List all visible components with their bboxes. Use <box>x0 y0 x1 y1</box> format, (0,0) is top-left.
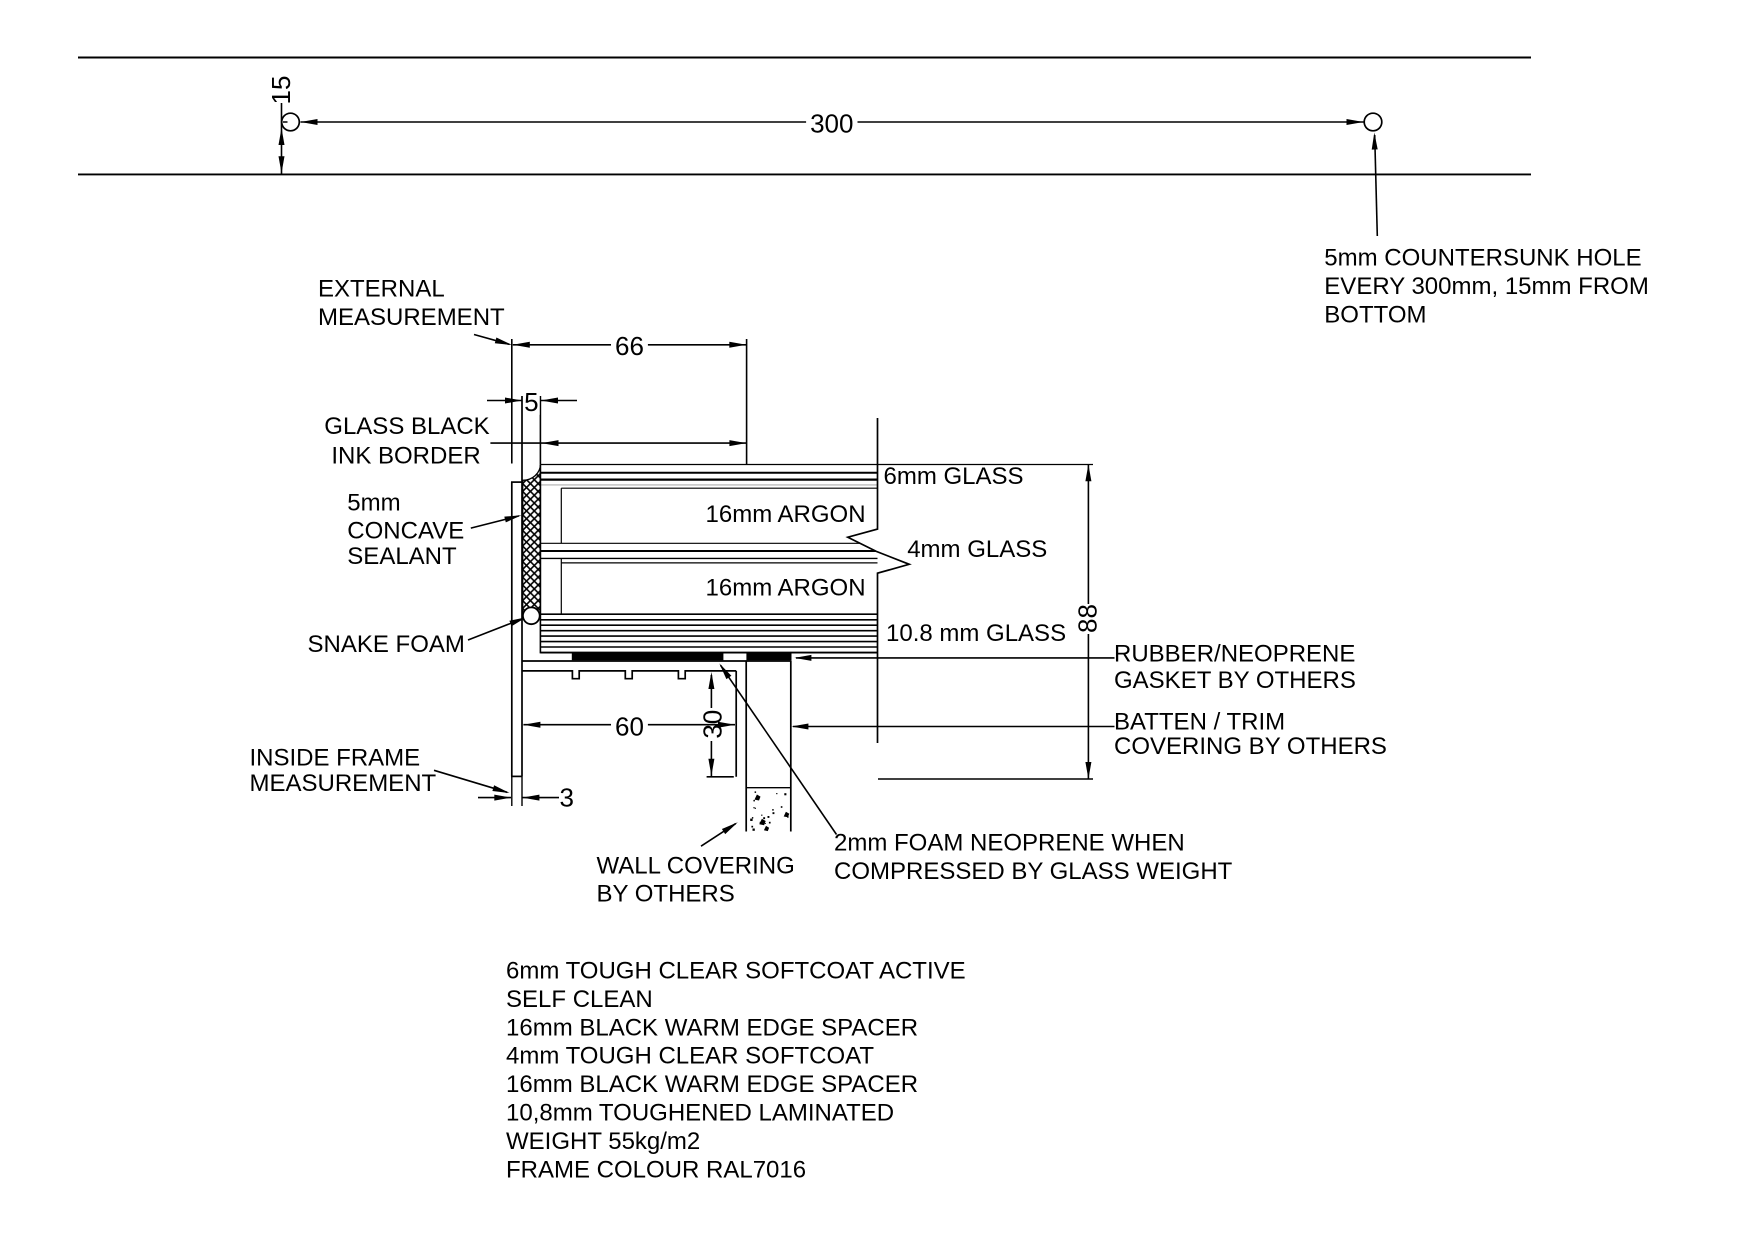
svg-text:5mm: 5mm <box>347 490 400 517</box>
svg-text:CONCAVE: CONCAVE <box>347 518 464 545</box>
svg-text:SELF CLEAN: SELF CLEAN <box>506 986 653 1013</box>
svg-text:15: 15 <box>266 76 296 105</box>
svg-text:5mm COUNTERSUNK HOLE: 5mm COUNTERSUNK HOLE <box>1324 245 1641 272</box>
svg-text:GLASS BLACK: GLASS BLACK <box>324 413 489 440</box>
svg-text:6mm GLASS: 6mm GLASS <box>884 463 1024 490</box>
svg-text:COMPRESSED BY GLASS WEIGHT: COMPRESSED BY GLASS WEIGHT <box>834 858 1233 885</box>
svg-text:BATTEN / TRIM: BATTEN / TRIM <box>1114 709 1285 736</box>
svg-text:GASKET BY OTHERS: GASKET BY OTHERS <box>1114 667 1356 694</box>
svg-text:WALL COVERING: WALL COVERING <box>597 853 795 880</box>
svg-text:INSIDE FRAME: INSIDE FRAME <box>250 745 421 772</box>
svg-text:BOTTOM: BOTTOM <box>1324 302 1426 329</box>
svg-text:4mm GLASS: 4mm GLASS <box>907 536 1047 563</box>
svg-text:6mm TOUGH CLEAR SOFTCOAT ACTIV: 6mm TOUGH CLEAR SOFTCOAT ACTIVE <box>506 958 966 985</box>
svg-text:16mm BLACK WARM EDGE SPACER: 16mm BLACK WARM EDGE SPACER <box>506 1014 918 1041</box>
svg-text:60: 60 <box>615 711 644 741</box>
svg-text:300: 300 <box>810 108 853 138</box>
svg-text:10.8 mm GLASS: 10.8 mm GLASS <box>886 620 1066 647</box>
svg-text:2mm FOAM NEOPRENE WHEN: 2mm FOAM NEOPRENE WHEN <box>834 830 1185 857</box>
svg-text:3: 3 <box>560 783 574 813</box>
svg-text:88: 88 <box>1072 604 1102 633</box>
svg-text:MEASUREMENT: MEASUREMENT <box>250 770 437 797</box>
svg-text:EVERY 300mm, 15mm FROM: EVERY 300mm, 15mm FROM <box>1324 273 1649 300</box>
svg-text:16mm BLACK WARM EDGE SPACER: 16mm BLACK WARM EDGE SPACER <box>506 1071 918 1098</box>
svg-text:SEALANT: SEALANT <box>347 543 457 570</box>
svg-text:10,8mm TOUGHENED LAMINATED: 10,8mm TOUGHENED LAMINATED <box>506 1100 894 1127</box>
svg-text:MEASUREMENT: MEASUREMENT <box>318 304 505 331</box>
svg-text:16mm ARGON: 16mm ARGON <box>706 575 866 602</box>
svg-text:COVERING BY OTHERS: COVERING BY OTHERS <box>1114 733 1387 760</box>
svg-text:BY OTHERS: BY OTHERS <box>597 881 735 908</box>
svg-text:RUBBER/NEOPRENE: RUBBER/NEOPRENE <box>1114 641 1355 668</box>
svg-text:WEIGHT 55kg/m2: WEIGHT 55kg/m2 <box>506 1128 700 1155</box>
svg-text:16mm ARGON: 16mm ARGON <box>706 501 866 528</box>
svg-text:5: 5 <box>524 387 538 417</box>
svg-text:SNAKE FOAM: SNAKE FOAM <box>308 631 465 658</box>
svg-text:INK BORDER: INK BORDER <box>331 442 480 469</box>
svg-text:4mm TOUGH CLEAR SOFTCOAT: 4mm TOUGH CLEAR SOFTCOAT <box>506 1043 874 1070</box>
svg-text:EXTERNAL: EXTERNAL <box>318 276 445 303</box>
svg-text:66: 66 <box>615 331 644 361</box>
svg-text:FRAME COLOUR RAL7016: FRAME COLOUR RAL7016 <box>506 1156 806 1183</box>
